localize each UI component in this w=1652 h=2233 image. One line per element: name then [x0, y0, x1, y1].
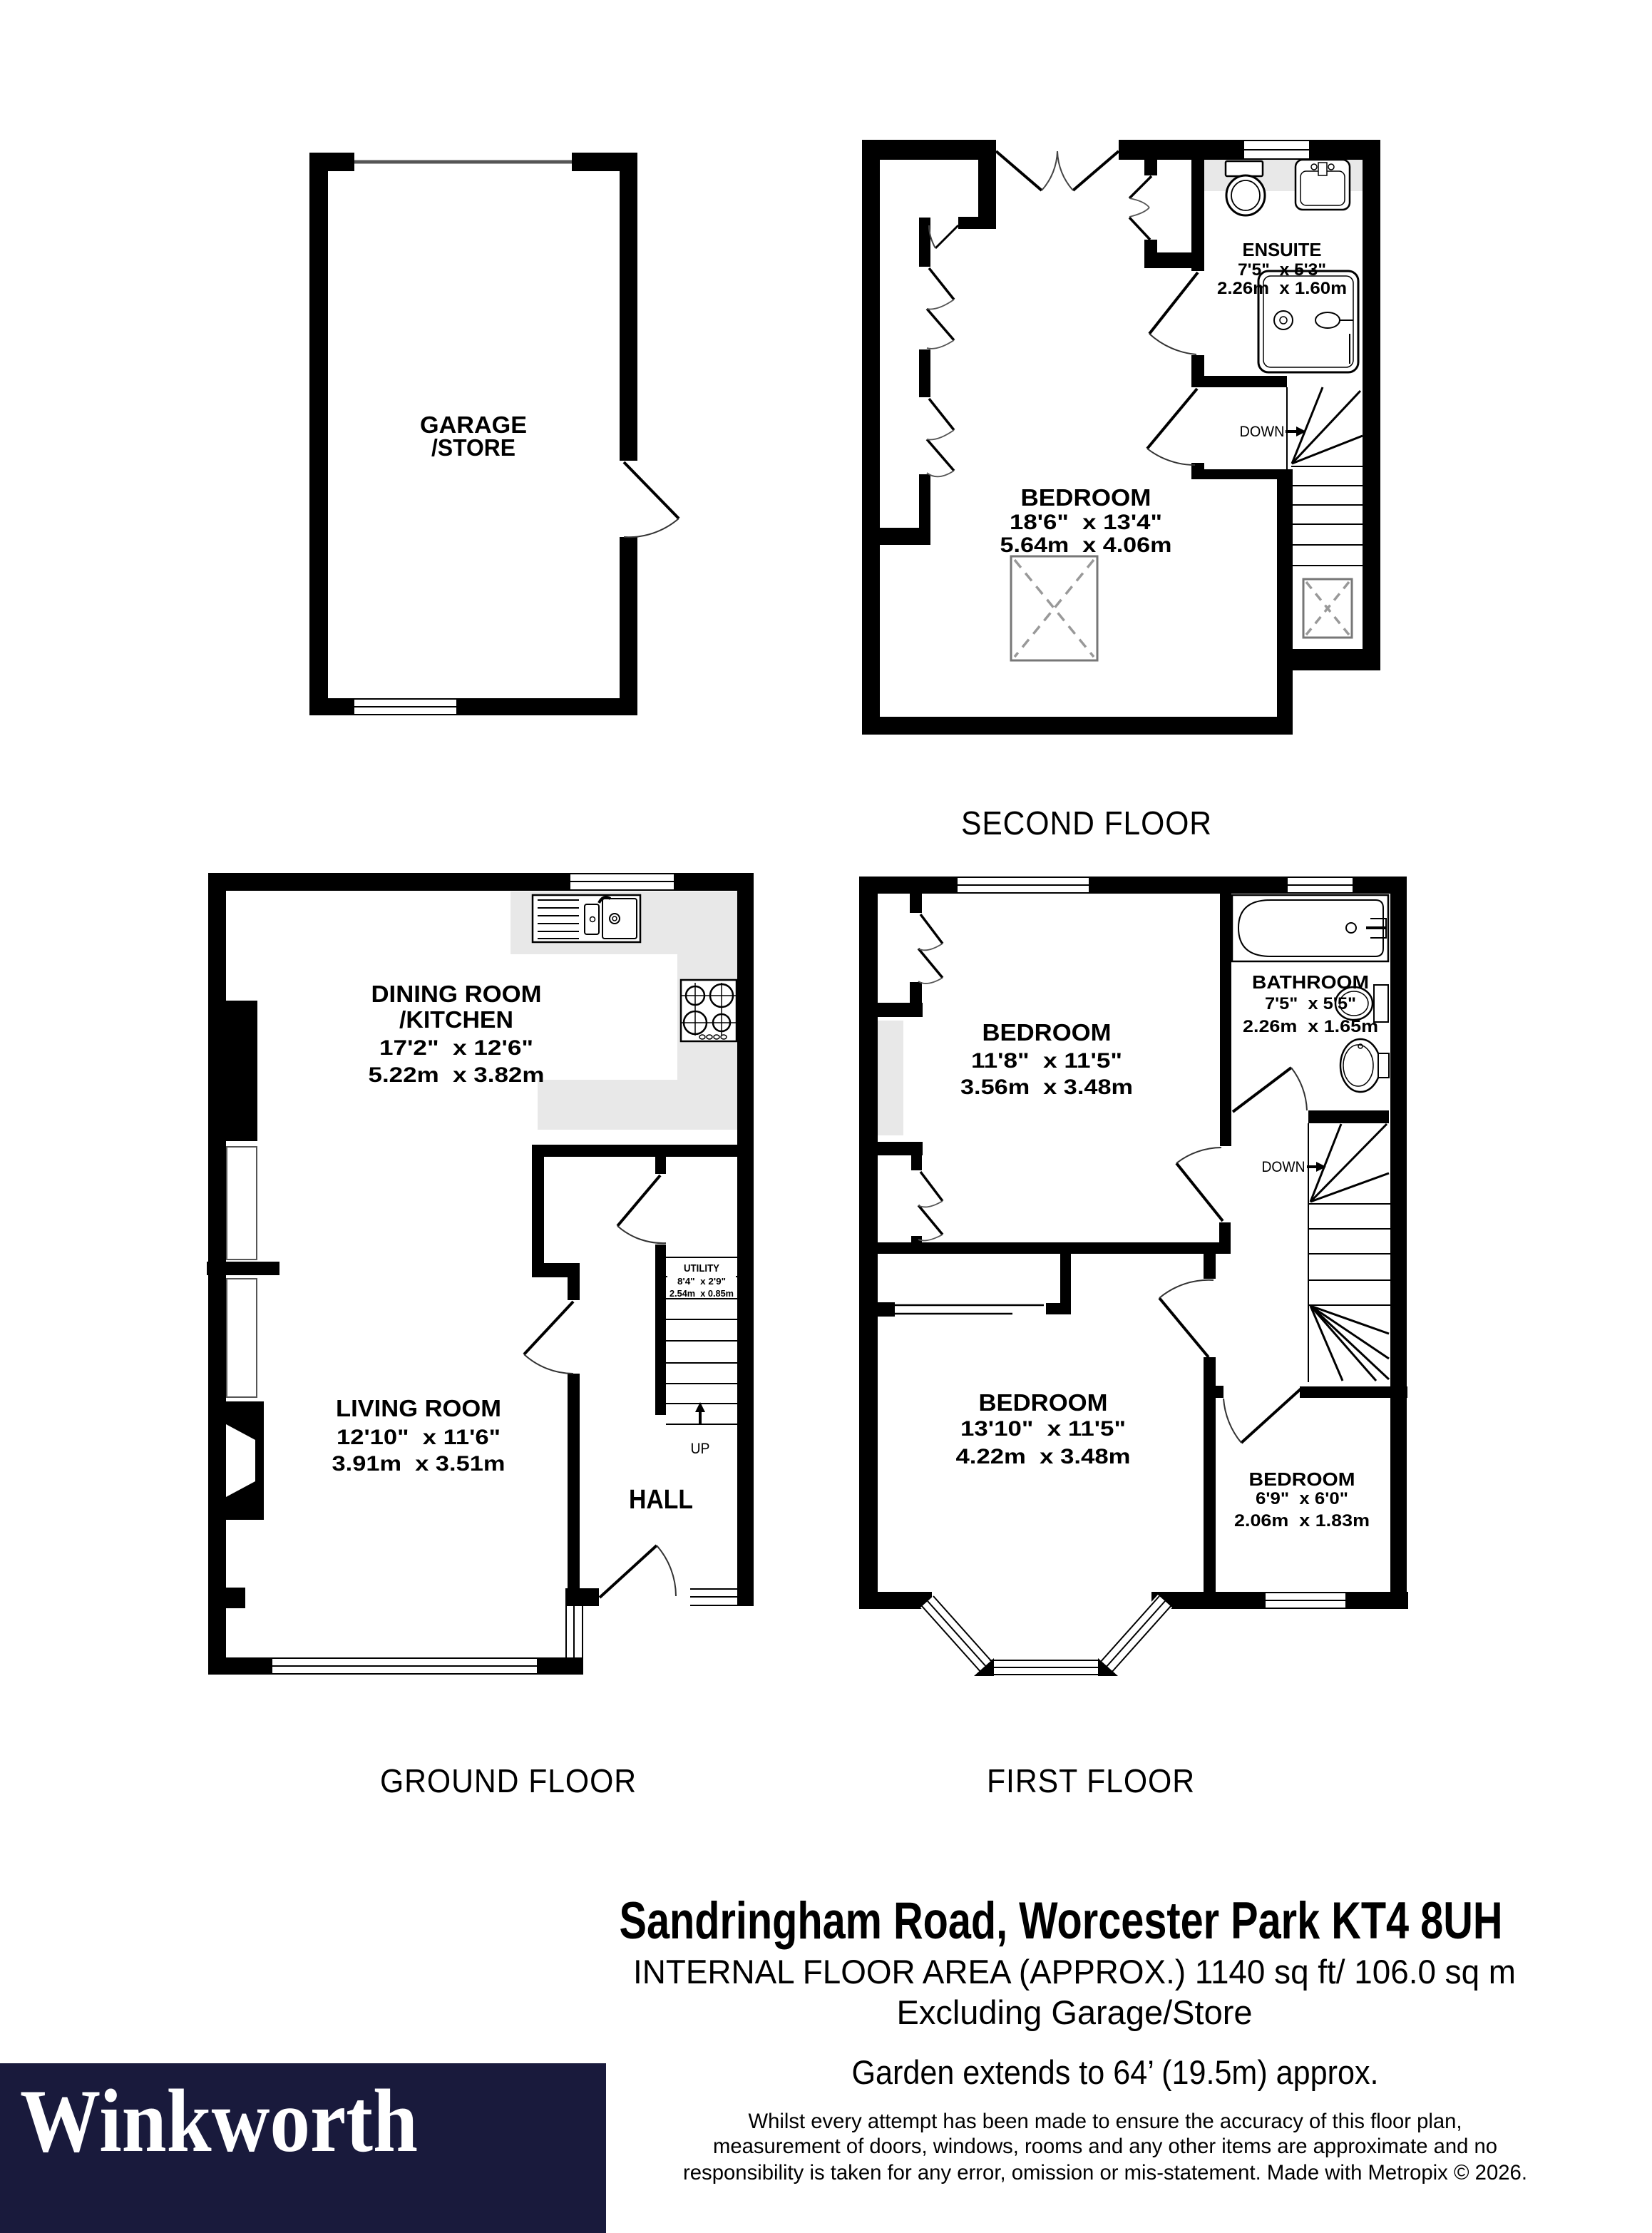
svg-text:2.06m x 1.83m: 2.06m x 1.83m — [1234, 1511, 1370, 1531]
svg-text:FIRST FLOOR: FIRST FLOOR — [987, 1762, 1195, 1799]
svg-text:GROUND FLOOR: GROUND FLOOR — [380, 1762, 637, 1799]
svg-text:Excluding Garage/Store: Excluding Garage/Store — [896, 1993, 1252, 2031]
svg-text:Winkworth: Winkworth — [20, 2072, 418, 2171]
svg-text:ENSUITE: ENSUITE — [1243, 239, 1322, 260]
svg-text:UTILITY: UTILITY — [684, 1262, 719, 1274]
svg-text:DOWN: DOWN — [1240, 424, 1285, 440]
svg-text:Whilst every attempt has been: Whilst every attempt has been made to en… — [749, 2110, 1462, 2133]
svg-text:5.64m x 4.06m: 5.64m x 4.06m — [1000, 533, 1172, 557]
svg-text:measurement of doors, windows,: measurement of doors, windows, rooms and… — [713, 2135, 1497, 2158]
svg-text:DINING ROOM: DINING ROOM — [371, 981, 542, 1007]
svg-text:7'5" x 5'3": 7'5" x 5'3" — [1238, 260, 1326, 280]
svg-text:3.91m x 3.51m: 3.91m x 3.51m — [332, 1452, 506, 1476]
svg-text:13'10" x 11'5": 13'10" x 11'5" — [960, 1417, 1126, 1441]
svg-text:2.54m x 0.85m: 2.54m x 0.85m — [669, 1288, 734, 1299]
svg-text:BEDROOM: BEDROOM — [983, 1019, 1112, 1046]
svg-text:responsibility is taken for an: responsibility is taken for any error, o… — [683, 2161, 1527, 2185]
svg-text:DOWN: DOWN — [1262, 1159, 1305, 1175]
svg-text:BATHROOM: BATHROOM — [1252, 971, 1369, 993]
svg-text:UP: UP — [691, 1441, 710, 1457]
svg-text:12'10" x 11'6": 12'10" x 11'6" — [337, 1426, 501, 1449]
svg-text:2.26m x 1.65m: 2.26m x 1.65m — [1243, 1017, 1378, 1036]
svg-text:INTERNAL FLOOR AREA (APPROX.): INTERNAL FLOOR AREA (APPROX.) 1140 sq ft… — [633, 1953, 1516, 1991]
svg-text:5.22m x 3.82m: 5.22m x 3.82m — [369, 1063, 545, 1087]
svg-text:BEDROOM: BEDROOM — [979, 1389, 1108, 1416]
svg-text:LIVING ROOM: LIVING ROOM — [336, 1395, 501, 1421]
svg-text:6'9" x 6'0": 6'9" x 6'0" — [1256, 1489, 1348, 1508]
svg-text:BEDROOM: BEDROOM — [1249, 1468, 1355, 1490]
svg-text:2.26m x 1.60m: 2.26m x 1.60m — [1217, 279, 1347, 298]
svg-text:HALL: HALL — [629, 1485, 693, 1515]
svg-text:Sandringham Road, Worcester Pa: Sandringham Road, Worcester Park KT4 8UH — [620, 1892, 1503, 1950]
svg-text:/STORE: /STORE — [431, 434, 515, 461]
svg-text:BEDROOM: BEDROOM — [1021, 484, 1151, 511]
svg-text:11'8" x 11'5": 11'8" x 11'5" — [971, 1049, 1122, 1073]
svg-text:7'5" x 5'5": 7'5" x 5'5" — [1265, 994, 1356, 1013]
svg-text:Garden extends to 64’ (19.5m): Garden extends to 64’ (19.5m) approx. — [852, 2053, 1379, 2091]
svg-text:18'6" x 13'4": 18'6" x 13'4" — [1010, 511, 1162, 534]
svg-text:4.22m x 3.48m: 4.22m x 3.48m — [956, 1445, 1131, 1468]
svg-text:/KITCHEN: /KITCHEN — [399, 1006, 513, 1033]
svg-text:8'4" x 2'9": 8'4" x 2'9" — [677, 1276, 726, 1287]
svg-text:3.56m x 3.48m: 3.56m x 3.48m — [960, 1075, 1133, 1099]
svg-text:17'2" x 12'6": 17'2" x 12'6" — [379, 1036, 533, 1060]
svg-text:SECOND FLOOR: SECOND FLOOR — [961, 804, 1212, 842]
